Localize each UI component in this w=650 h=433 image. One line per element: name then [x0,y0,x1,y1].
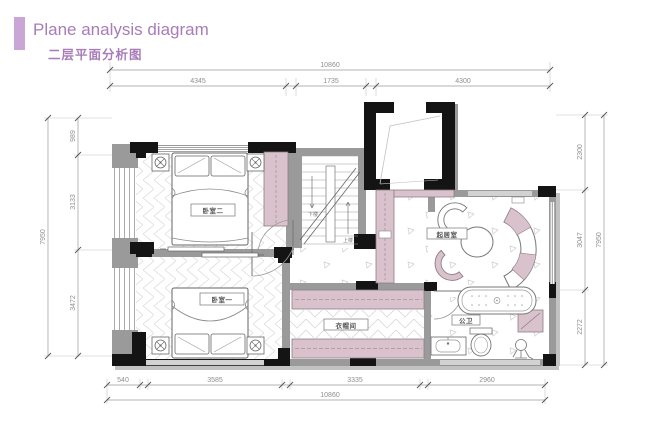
sitting-label: 起居室 [436,230,458,239]
bedroom1-label: 卧室一 [212,295,233,304]
window-left-upper [112,168,136,238]
window-right-sitting [550,202,555,284]
window-top-bedroom2 [158,146,248,152]
dim-right-seg2: 3047 [577,232,584,248]
bath-label: 公卫 [459,317,473,325]
staircase: 下楼 上楼 [300,156,360,244]
dim-top-total: 10860 [320,62,340,69]
stair-up-label: 上楼 [343,237,353,244]
dim-right-seg1: 2300 [577,144,584,160]
wardrobe-bedroom2 [264,152,288,226]
toilet [470,328,492,356]
dim-top-seg1: 4345 [190,78,206,85]
nightstand [152,154,169,171]
dim-bottom-seg4: 2960 [479,377,495,384]
wall-tag-sitting [512,197,524,203]
page: Plane analysis diagram 二层平面分析图 [0,0,650,433]
dim-bottom-seg2: 3585 [207,377,223,384]
sink [431,337,466,355]
dim-top-seg2: 1735 [323,78,339,85]
window-bottom-bath [440,360,540,365]
bathtub [458,287,536,314]
nightstand [247,337,264,354]
stair-up-arrow [346,202,350,234]
stair-down-label: 下楼 [308,211,318,218]
dim-top-seg3: 4300 [455,78,471,85]
floor-plan: 下楼 上楼 [0,0,650,433]
cloak-wardrobe-bottom [292,339,424,358]
dim-bottom-total: 10860 [320,392,340,399]
cloak-label: 衣帽间 [336,321,357,330]
bedroom2-label: 卧室二 [203,206,224,215]
pillow [175,156,209,176]
dim-bottom-seg1: 540 [117,377,129,384]
window-left-lower [112,268,136,330]
stair-down-arrow [310,176,314,208]
stair-stringer [326,166,335,242]
dim-left-total: 7950 [40,229,47,245]
pillow [175,334,209,354]
window-bottom-bedroom1 [146,360,264,365]
dim-left-seg3: 3472 [70,295,77,311]
dim-right-total: 7950 [596,232,603,248]
window-top-sitting [468,191,532,196]
cloak-room: 衣帽间 [324,319,368,330]
dim-right-seg3: 2272 [577,319,584,335]
nightstand [247,154,264,171]
dim-bottom-seg3: 3335 [347,377,363,384]
door-tag-corridor [379,231,391,238]
dim-left-seg1: 989 [70,130,77,142]
dim-left-seg2: 3133 [70,194,77,210]
corridor-top-cabinet [394,190,454,197]
void-shaft [380,116,440,184]
cloak-wardrobe-top [292,290,424,309]
nightstand [152,337,169,354]
